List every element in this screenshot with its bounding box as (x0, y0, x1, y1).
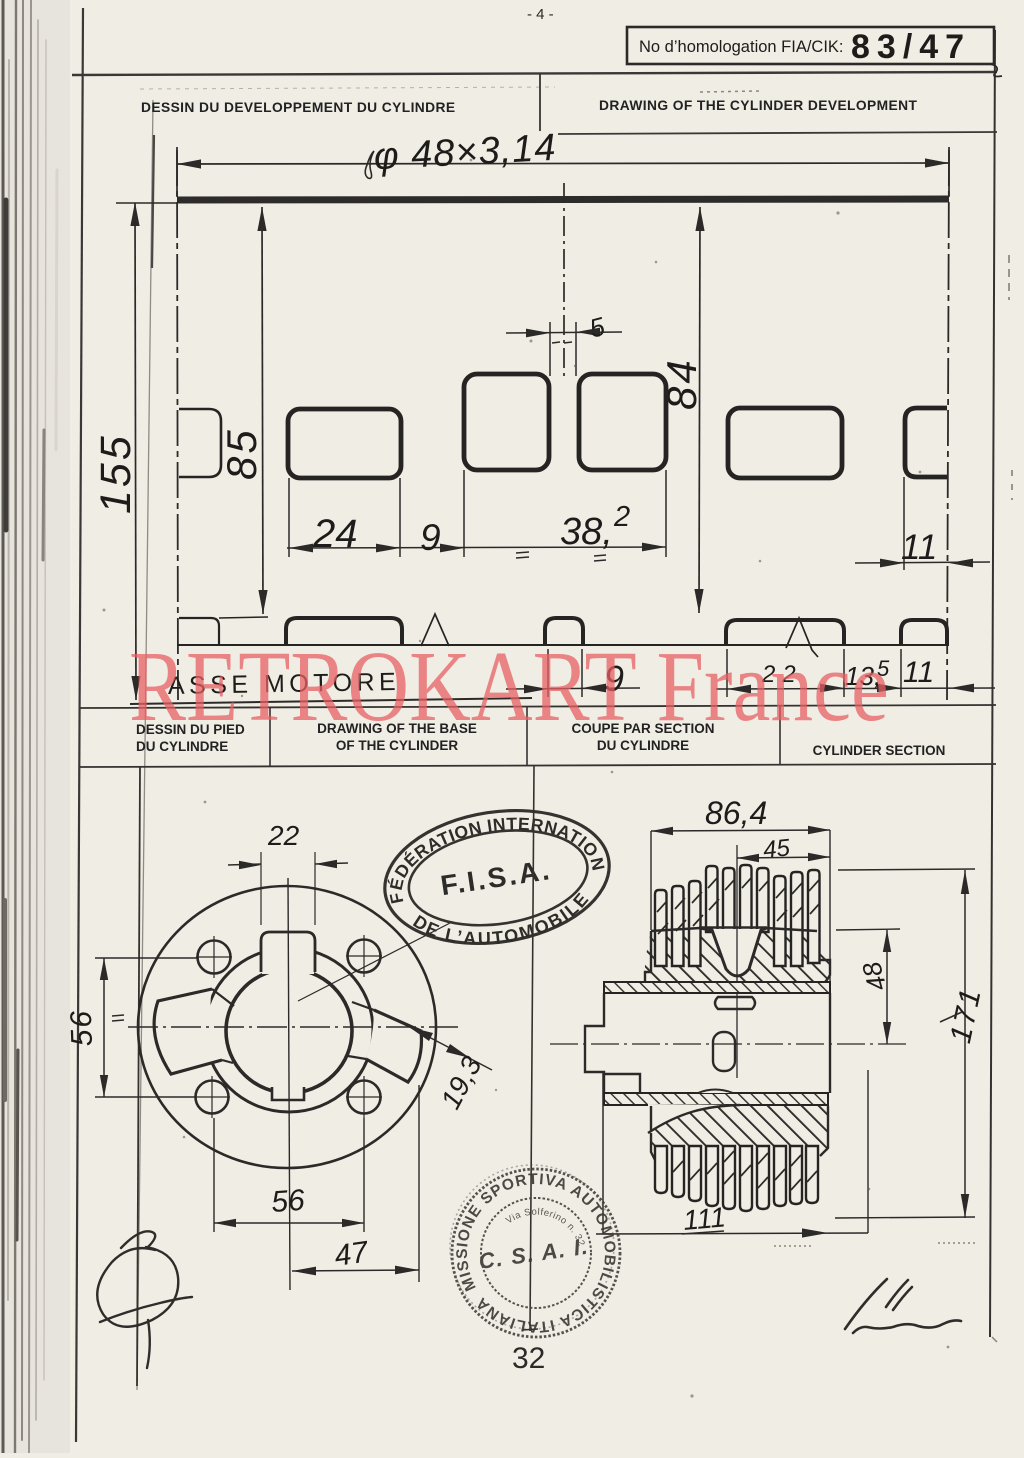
svg-text:22: 22 (267, 820, 300, 851)
svg-text:47: 47 (332, 1235, 371, 1273)
svg-text:11: 11 (903, 656, 934, 689)
svg-text:155: 155 (92, 433, 140, 514)
svg-text:DESSIN DU DEVELOPPEMENT DU CYL: DESSIN DU DEVELOPPEMENT DU CYLINDRE (141, 100, 456, 115)
svg-text:56: 56 (65, 1008, 99, 1047)
svg-text:2: 2 (613, 501, 630, 533)
svg-text:11: 11 (901, 528, 937, 567)
svg-text:83/47: 83/47 (851, 28, 971, 66)
svg-text:DRAWING OF THE CYLINDER DEVELO: DRAWING OF THE CYLINDER DEVELOPMENT (599, 98, 917, 113)
svg-text:85: 85 (218, 427, 265, 480)
svg-text:56: 56 (270, 1184, 306, 1219)
svg-text:45: 45 (762, 834, 792, 864)
svg-text:86,4: 86,4 (705, 795, 767, 831)
svg-text:RETROKART France: RETROKART France (129, 630, 889, 742)
svg-text:38,: 38, (560, 511, 613, 553)
svg-text:24: 24 (312, 512, 358, 556)
svg-text:- 4 -: - 4 - (527, 6, 554, 23)
svg-text:No d’homologation FIA/CIK:: No d’homologation FIA/CIK: (639, 38, 844, 56)
svg-text:9: 9 (420, 517, 441, 558)
svg-text:32: 32 (512, 1342, 545, 1375)
svg-text:CYLINDER SECTION: CYLINDER SECTION (813, 743, 946, 758)
